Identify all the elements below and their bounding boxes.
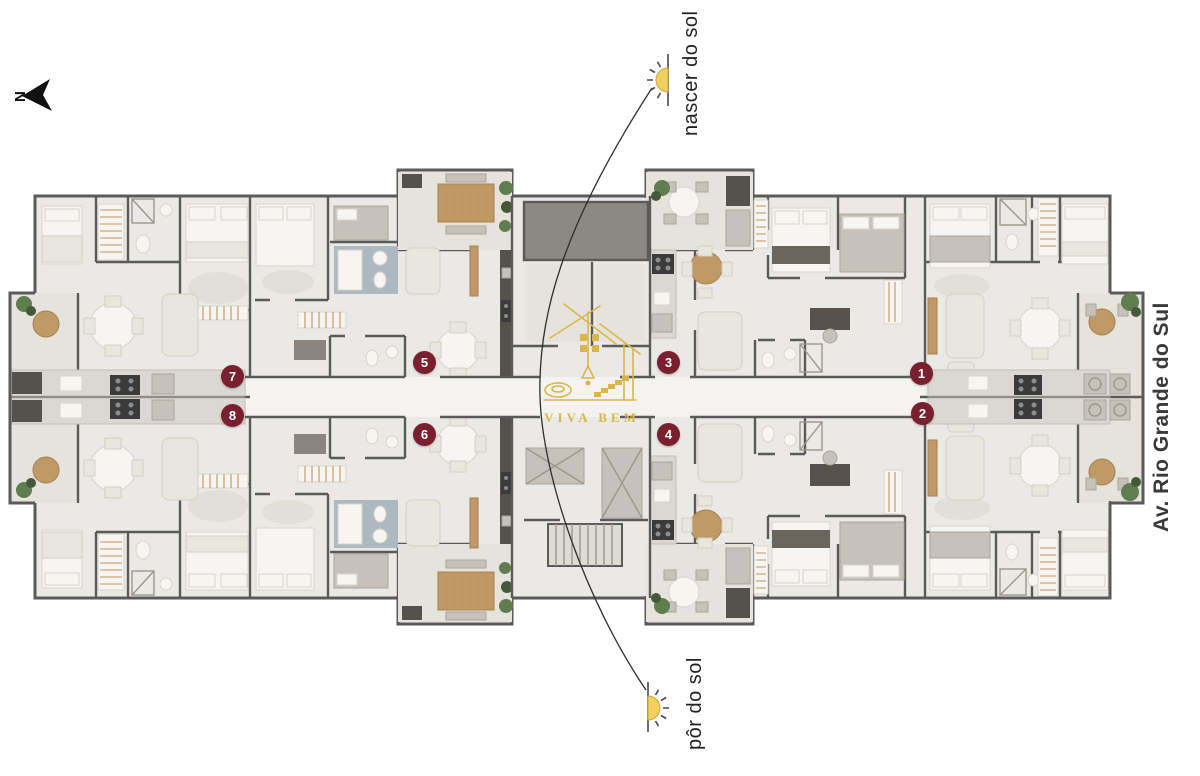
sunset-icon [628, 682, 672, 734]
floor-plan-rendering: N nascer do sol pôr do sol Av. Rio Grand… [0, 0, 1200, 776]
street-label: Av. Rio Grande do Sul [1150, 272, 1174, 532]
sunrise-icon [645, 52, 685, 108]
unit-3-badge: 3 [657, 351, 680, 374]
sunset-label: pôr do sol [684, 650, 707, 750]
unit-2-badge: 2 [911, 402, 934, 425]
logo-text: VIVA BEM [536, 410, 648, 426]
unit-1-badge: 1 [910, 362, 933, 385]
viva-bem-logo-icon [536, 302, 648, 408]
unit-8-badge: 8 [221, 404, 244, 427]
north-label: N [12, 91, 29, 102]
north-arrow-icon: N [10, 74, 70, 118]
unit-6-badge: 6 [413, 423, 436, 446]
unit-7-badge: 7 [221, 365, 244, 388]
unit-4-badge: 4 [657, 423, 680, 446]
unit-5-badge: 5 [413, 351, 436, 374]
sunrise-label: nascer do sol [680, 4, 703, 136]
